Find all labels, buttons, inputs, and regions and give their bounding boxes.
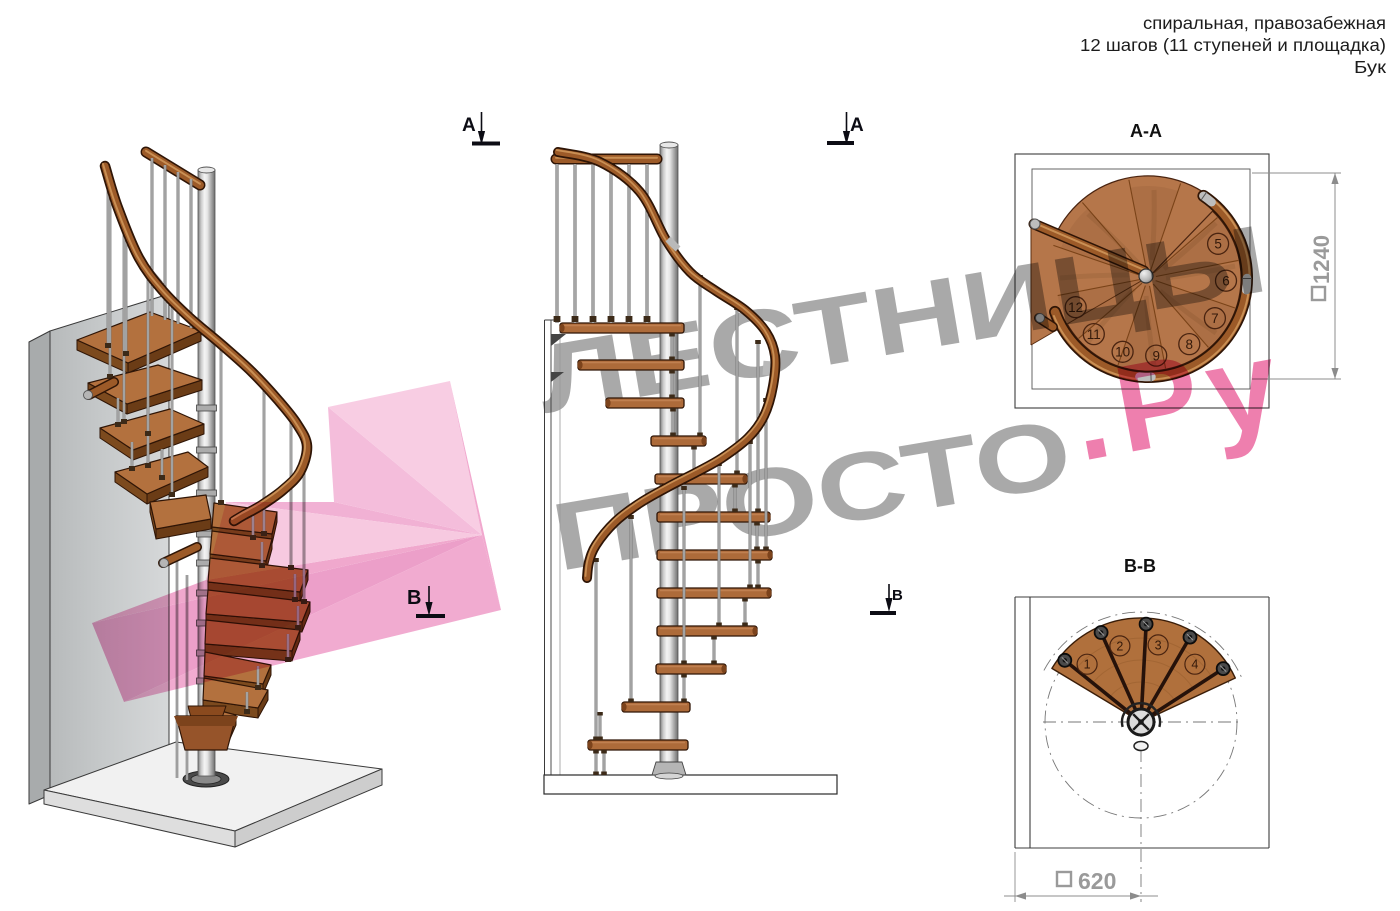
svg-text:4: 4 bbox=[1191, 658, 1198, 672]
svg-text:1240: 1240 bbox=[1309, 235, 1334, 284]
svg-text:12 шагов (11 ступеней и площад: 12 шагов (11 ступеней и площадка) bbox=[1080, 35, 1386, 55]
svg-text:3: 3 bbox=[1155, 638, 1162, 652]
svg-text:620: 620 bbox=[1078, 868, 1116, 894]
svg-text:В-В: В-В bbox=[1124, 556, 1156, 576]
svg-text:А-А: А-А bbox=[1130, 121, 1162, 141]
svg-text:1: 1 bbox=[1084, 658, 1091, 672]
svg-text:А: А bbox=[850, 115, 864, 136]
svg-text:Бук: Бук bbox=[1354, 57, 1386, 77]
svg-text:А: А bbox=[462, 115, 476, 136]
svg-text:ПРОСТО: ПРОСТО bbox=[545, 399, 1080, 592]
svg-text:2: 2 bbox=[1116, 639, 1123, 653]
svg-text:спиральная, правозабежная: спиральная, правозабежная bbox=[1143, 13, 1386, 33]
svg-text:В: В bbox=[892, 587, 903, 604]
svg-text:В: В bbox=[407, 587, 421, 609]
